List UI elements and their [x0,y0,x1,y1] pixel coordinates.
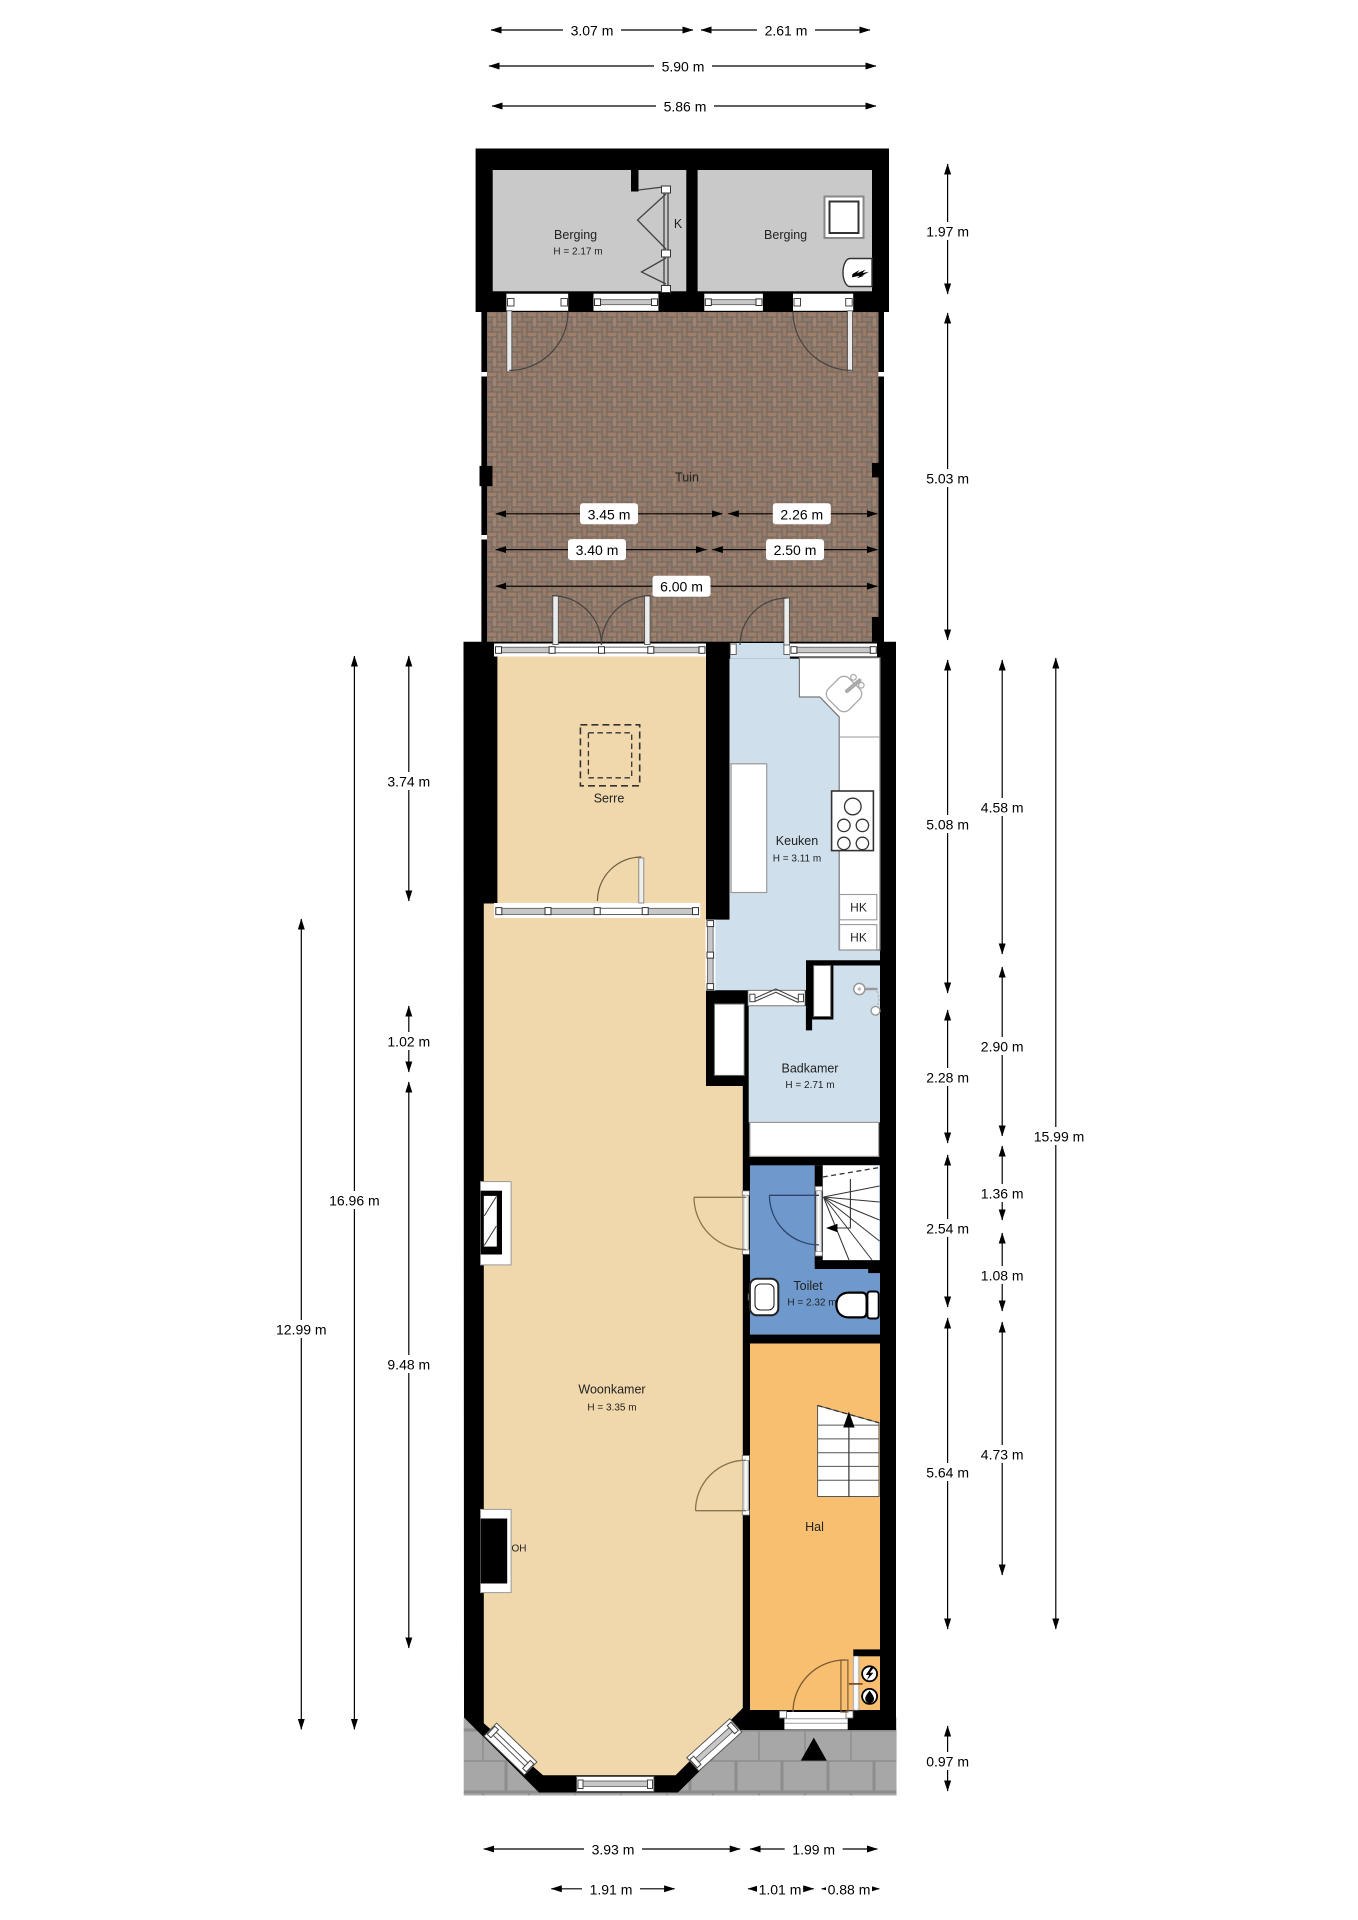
svg-text:1.36 m: 1.36 m [981,1186,1024,1202]
svg-text:Berging: Berging [764,228,807,242]
svg-text:4.73 m: 4.73 m [981,1447,1024,1463]
svg-text:3.93 m: 3.93 m [592,1842,635,1858]
svg-text:2.50 m: 2.50 m [774,542,817,558]
svg-text:1.99 m: 1.99 m [792,1842,835,1858]
svg-text:5.86 m: 5.86 m [664,99,707,115]
svg-text:Toilet: Toilet [793,1279,823,1293]
svg-text:9.48 m: 9.48 m [387,1357,430,1373]
svg-text:Berging: Berging [554,228,597,242]
svg-text:H = 2.32 m: H = 2.32 m [787,1298,836,1309]
svg-text:2.54 m: 2.54 m [926,1221,969,1237]
svg-text:HK: HK [850,901,867,915]
svg-text:1.97 m: 1.97 m [926,224,969,240]
svg-text:5.64 m: 5.64 m [926,1465,969,1481]
svg-text:H = 2.17 m: H = 2.17 m [553,247,602,258]
svg-text:2.61 m: 2.61 m [765,23,808,39]
svg-text:Keuken: Keuken [776,834,818,848]
svg-text:15.99 m: 15.99 m [1034,1129,1085,1145]
svg-text:H = 3.11 m: H = 3.11 m [773,854,821,865]
svg-text:1.91 m: 1.91 m [590,1881,633,1897]
svg-text:0.97 m: 0.97 m [926,1754,969,1770]
svg-text:2.26 m: 2.26 m [780,506,823,522]
svg-text:4.58 m: 4.58 m [981,800,1024,816]
svg-text:3.40 m: 3.40 m [576,542,619,558]
svg-text:Tuin: Tuin [675,471,699,485]
svg-text:Serre: Serre [594,792,625,806]
svg-text:HK: HK [850,931,867,945]
svg-text:OH: OH [512,1544,527,1555]
svg-text:5.03 m: 5.03 m [926,471,969,487]
svg-text:H = 3.35 m: H = 3.35 m [587,1403,636,1414]
svg-text:Hal: Hal [805,1520,824,1534]
svg-text:1.02 m: 1.02 m [387,1034,430,1050]
svg-text:5.08 m: 5.08 m [926,817,969,833]
svg-text:3.07 m: 3.07 m [571,23,614,39]
svg-text:Woonkamer: Woonkamer [578,1383,645,1397]
svg-text:6.00 m: 6.00 m [660,579,703,595]
svg-text:16.96 m: 16.96 m [329,1193,380,1209]
svg-text:H = 2.71 m: H = 2.71 m [785,1080,834,1091]
svg-text:2.90 m: 2.90 m [981,1039,1024,1055]
svg-text:1.01 m: 1.01 m [759,1881,802,1897]
svg-text:5.90 m: 5.90 m [662,59,705,75]
svg-text:2.28 m: 2.28 m [926,1070,969,1086]
svg-text:Badkamer: Badkamer [782,1062,839,1076]
svg-text:K: K [674,217,683,231]
svg-text:1.08 m: 1.08 m [981,1268,1024,1284]
svg-text:0.88 m: 0.88 m [828,1881,871,1897]
svg-text:3.74 m: 3.74 m [387,774,430,790]
svg-text:12.99 m: 12.99 m [276,1322,327,1338]
svg-text:3.45 m: 3.45 m [588,506,631,522]
